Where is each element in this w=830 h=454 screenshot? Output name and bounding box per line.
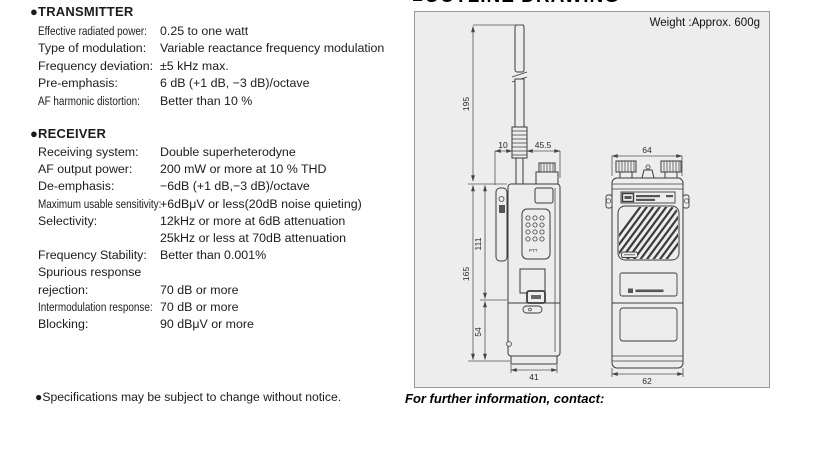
dim-label-165: 165 — [461, 267, 471, 281]
dim-label-195: 195 — [461, 97, 471, 111]
spec-row: Selectivity: 12kHz or more at 6dB attenu… — [38, 213, 413, 230]
spec-row: Type of modulation: Variable reactance f… — [38, 40, 413, 57]
spec-label: Frequency deviation: — [38, 58, 160, 75]
spec-value: 70 dB or more — [160, 282, 413, 299]
spec-value: 25kHz or less at 70dB attenuation — [160, 230, 413, 247]
spec-value: 70 dB or more — [160, 299, 413, 316]
spec-label: Spurious response — [38, 264, 160, 281]
spec-row: Frequency deviation: ±5 kHz max. — [38, 58, 413, 75]
spec-value: −6dB (+1 dB,−3 dB)/octave — [160, 178, 413, 195]
spec-row: Frequency Stability: Better than 0.001% — [38, 247, 413, 264]
specifications-section: ●TRANSMITTER Effective radiated power: 0… — [38, 0, 413, 333]
outline-drawing-header: ■OUTLINE DRAWING — [412, 0, 620, 8]
spec-row: Pre-emphasis: 6 dB (+1 dB, −3 dB)/octave — [38, 75, 413, 92]
front-view-drawing — [595, 161, 706, 368]
spec-row: 25kHz or less at 70dB attenuation — [38, 230, 413, 247]
side-view-drawing: PTT — [496, 25, 560, 364]
spec-value: Variable reactance frequency modulation — [160, 40, 413, 57]
spec-label: Maximum usable sensitivity: — [38, 196, 136, 213]
spec-value: Double superheterodyne — [160, 144, 413, 161]
dim-label-62: 62 — [642, 376, 652, 386]
spec-row: Effective radiated power: 0.25 to one wa… — [38, 23, 413, 40]
spec-label: AF output power: — [38, 161, 160, 178]
receiver-section-title: ●RECEIVER — [30, 125, 413, 142]
spec-row: Maximum usable sensitivity: +6dBμV or le… — [38, 196, 413, 213]
dim-label-10: 10 — [498, 140, 508, 150]
outline-drawing-svg: PTT — [415, 12, 771, 389]
spec-label: Frequency Stability: — [38, 247, 160, 264]
spec-sheet-page: ●TRANSMITTER Effective radiated power: 0… — [0, 0, 830, 454]
transmitter-section-title: ●TRANSMITTER — [30, 3, 413, 20]
spec-value: 6 dB (+1 dB, −3 dB)/octave — [160, 75, 413, 92]
spec-label: Intermodulation response: — [38, 299, 136, 316]
spec-row: AF output power: 200 mW or more at 10 % … — [38, 161, 413, 178]
dim-label-45-5: 45.5 — [535, 140, 552, 150]
spec-label: rejection: — [38, 282, 160, 299]
spec-label: Blocking: — [38, 316, 160, 333]
spec-value: +6dBμV or less(20dB noise quieting) — [160, 196, 413, 213]
spec-label: De-emphasis: — [38, 178, 160, 195]
spec-value: Better than 10 % — [160, 93, 413, 110]
outline-drawing-panel: Weight :Approx. 600g — [414, 11, 770, 388]
dim-label-111: 111 — [473, 237, 483, 250]
spec-value — [160, 264, 413, 281]
dim-label-54: 54 — [473, 327, 483, 337]
spec-label: Type of modulation: — [38, 40, 160, 57]
spec-value: ±5 kHz max. — [160, 58, 413, 75]
keypad-label: PTT — [529, 248, 538, 253]
transmitter-spec-table: Effective radiated power: 0.25 to one wa… — [38, 23, 413, 110]
spec-label: Receiving system: — [38, 144, 160, 161]
spec-row: AF harmonic distortion: Better than 10 % — [38, 93, 413, 110]
spec-row: Blocking: 90 dBμV or more — [38, 316, 413, 333]
spec-value: Better than 0.001% — [160, 247, 413, 264]
contact-note: For further information, contact: — [405, 391, 604, 406]
spec-label — [38, 230, 160, 247]
dim-label-41: 41 — [529, 372, 539, 382]
spec-row: Intermodulation response: 70 dB or more — [38, 299, 413, 316]
spec-label: Pre-emphasis: — [38, 75, 160, 92]
dim-label-64: 64 — [642, 145, 652, 155]
receiver-spec-table: Receiving system: Double superheterodyne… — [38, 144, 413, 333]
specs-change-footnote: ●Specifications may be subject to change… — [35, 390, 341, 404]
spec-value: 12kHz or more at 6dB attenuation — [160, 213, 413, 230]
spec-value: 90 dBμV or more — [160, 316, 413, 333]
spec-row: rejection: 70 dB or more — [38, 282, 413, 299]
spec-label: AF harmonic distortion: — [38, 93, 136, 110]
spec-value: 0.25 to one watt — [160, 23, 413, 40]
spec-row: Receiving system: Double superheterodyne — [38, 144, 413, 161]
spec-row: De-emphasis: −6dB (+1 dB,−3 dB)/octave — [38, 178, 413, 195]
spec-label: Effective radiated power: — [38, 23, 136, 40]
spec-value: 200 mW or more at 10 % THD — [160, 161, 413, 178]
spec-label: Selectivity: — [38, 213, 160, 230]
spec-row: Spurious response — [38, 264, 413, 281]
